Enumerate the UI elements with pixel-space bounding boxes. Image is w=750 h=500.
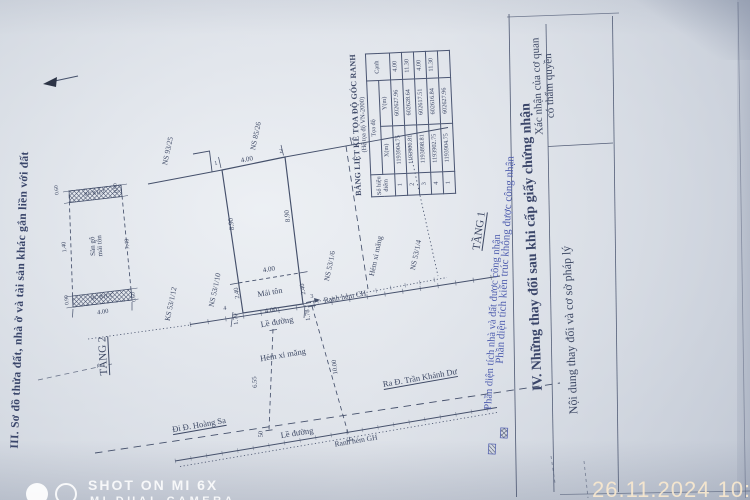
photo-timestamp: 26.11.2024 10:35	[592, 477, 750, 500]
col-point-header: Số hiệu điểm	[371, 174, 396, 197]
plot-dim-bottom: 4.00	[264, 306, 277, 315]
floor2-dim-top-right: 0.90	[114, 182, 121, 192]
floor2-dim-left: 1.40	[61, 241, 68, 252]
camera-watermark: SHOT ON MI 6X MI DUAL CAMERA	[0, 460, 300, 500]
road-dim-170: 1.70	[233, 313, 241, 325]
plot-dim-roof-right: 2.40	[299, 283, 307, 295]
road-dim-50: 50	[258, 430, 265, 437]
cell	[437, 50, 450, 78]
cell: 602627.96	[439, 77, 453, 123]
watermark-line2: MI DUAL CAMERA	[90, 495, 236, 500]
floor2-dim-width: 4.00	[97, 308, 109, 317]
watermark-filled-circle-icon	[26, 483, 48, 500]
floor2-dim-top-left: 0.60	[55, 185, 62, 195]
floor2-dim-bottom-right: 0.60	[132, 292, 139, 302]
section4-col-right-header: Xác nhận của cơ quan có thẩm quyền	[530, 37, 557, 135]
floor2-interior-line2: mái tôn	[96, 235, 104, 257]
cell: 4	[431, 172, 444, 194]
coordinate-table: BẢNG LIỆT KÊ TỌA ĐỘ GÓC RANH (Hệ tọa độ …	[348, 48, 456, 198]
document-content: III. Sơ đồ thửa đất, nhà ở và tài sản kh…	[0, 0, 750, 500]
plot-dim-left: 8.90	[227, 217, 236, 230]
north-arrow-icon	[43, 76, 78, 87]
floor2-dim-bottom-left: 0.90	[65, 295, 72, 305]
plot-dim-roof-left: 2.40	[234, 286, 242, 298]
road-dim-655: 6.55	[252, 376, 260, 388]
cell: 2	[407, 173, 420, 195]
floor2-label: TẦNG 2	[97, 336, 111, 375]
cell: 1193904.75	[441, 123, 455, 172]
watermark-ring-circle-icon	[55, 483, 77, 500]
floor2-interior-label: Sàn gỗ mái tôn	[89, 235, 105, 257]
coordinate-table-grid: Số hiệu điểm Tọa độ Cạnh X(m) Y(m) 1 119…	[365, 50, 456, 198]
plot-dim-right: 8.90	[284, 209, 293, 222]
road-dim-1000: 10.00	[332, 359, 340, 374]
photographed-land-document: III. Sơ đồ thửa đất, nhà ở và tài sản kh…	[0, 0, 750, 500]
floor2-dim-right: 7.40	[124, 238, 131, 249]
road-dim-178: 1.78	[305, 308, 313, 320]
col-edge-header: Cạnh	[365, 53, 390, 81]
legend-symbol-unrecognized	[500, 428, 508, 438]
plot-dim-top: 4.00	[240, 155, 253, 165]
cell: 1	[443, 171, 456, 193]
cell: 1	[395, 174, 408, 196]
watermark-line1: SHOT ON MI 6X	[88, 477, 218, 493]
cell: 3	[419, 172, 432, 194]
legend-symbol-recognized	[488, 444, 496, 454]
